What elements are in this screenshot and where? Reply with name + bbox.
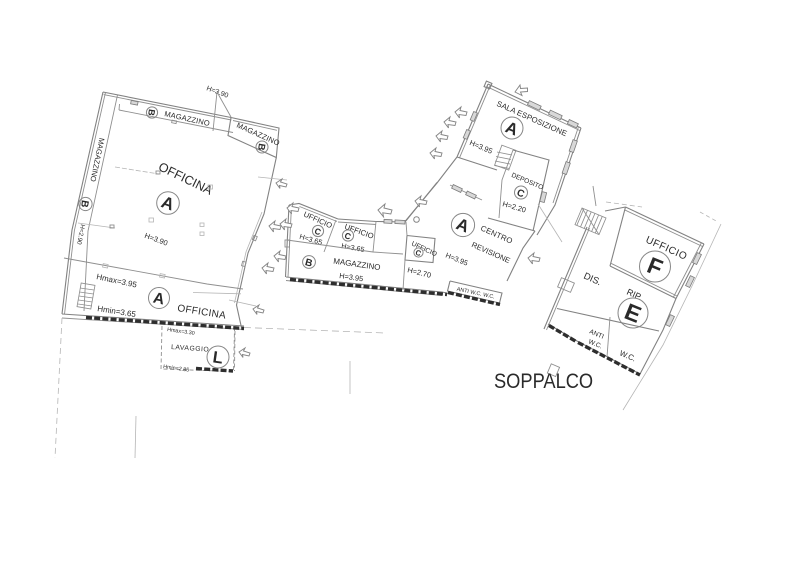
- svg-text:H=3.90: H=3.90: [143, 231, 169, 248]
- svg-text:Hmin=2.85: Hmin=2.85: [163, 364, 190, 374]
- svg-text:A: A: [454, 214, 473, 236]
- svg-text:SOPPALCO: SOPPALCO: [494, 370, 593, 394]
- svg-text:Hmax=3.95: Hmax=3.95: [96, 272, 139, 289]
- svg-text:H=3.95: H=3.95: [444, 251, 469, 268]
- svg-text:H=3.95: H=3.95: [468, 138, 494, 156]
- svg-text:H=2.90: H=2.90: [75, 224, 86, 246]
- svg-text:H=2.70: H=2.70: [407, 265, 433, 280]
- svg-text:L: L: [212, 348, 225, 367]
- svg-text:H=2.20: H=2.20: [501, 199, 527, 214]
- svg-text:REVISIONE: REVISIONE: [470, 240, 511, 265]
- svg-text:A: A: [152, 289, 166, 308]
- svg-text:DIS.: DIS.: [582, 270, 603, 287]
- svg-text:MAGAZZINO: MAGAZZINO: [333, 257, 381, 273]
- svg-text:W.C.: W.C.: [618, 349, 637, 364]
- svg-text:F: F: [644, 252, 667, 281]
- svg-text:H=3.95: H=3.95: [339, 271, 364, 283]
- svg-text:A: A: [159, 192, 177, 214]
- svg-text:Hmax=3.30: Hmax=3.30: [167, 327, 195, 337]
- svg-text:LAVAGGIO: LAVAGGIO: [171, 344, 210, 354]
- svg-text:OFFICINA: OFFICINA: [177, 303, 227, 322]
- svg-text:CENTRO: CENTRO: [479, 224, 514, 246]
